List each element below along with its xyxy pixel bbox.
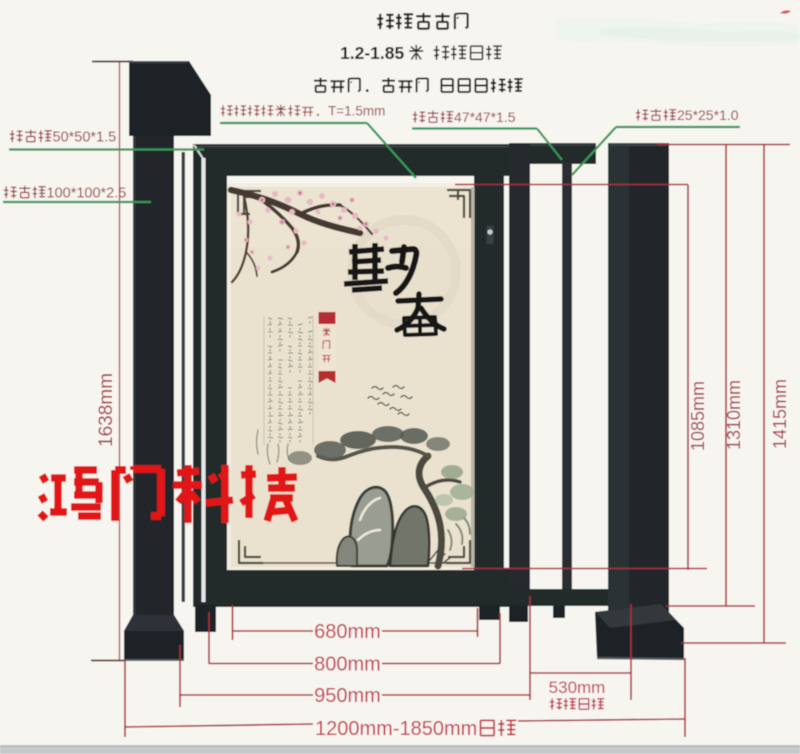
svg-text:1638mm: 1638mm: [96, 373, 117, 447]
svg-text:1085mm: 1085mm: [688, 381, 708, 451]
svg-text:1.2-1.85: 1.2-1.85: [340, 43, 404, 63]
svg-text:680mm: 680mm: [314, 621, 381, 643]
svg-text:25*25*1.0: 25*25*1.0: [677, 107, 739, 123]
svg-text:100*100*2.5: 100*100*2.5: [47, 185, 127, 201]
svg-text:1310mm: 1310mm: [724, 380, 744, 450]
svg-text:530mm: 530mm: [549, 678, 606, 697]
svg-text:950mm: 950mm: [314, 685, 381, 707]
svg-text:1415mm: 1415mm: [770, 379, 790, 449]
svg-text:50*50*1.5: 50*50*1.5: [53, 129, 117, 145]
svg-text:T=1.5mm: T=1.5mm: [328, 104, 385, 119]
svg-text:800mm: 800mm: [314, 654, 381, 676]
svg-text:1200mm-1850mm: 1200mm-1850mm: [315, 718, 477, 740]
svg-text:47*47*1.5: 47*47*1.5: [454, 109, 516, 125]
